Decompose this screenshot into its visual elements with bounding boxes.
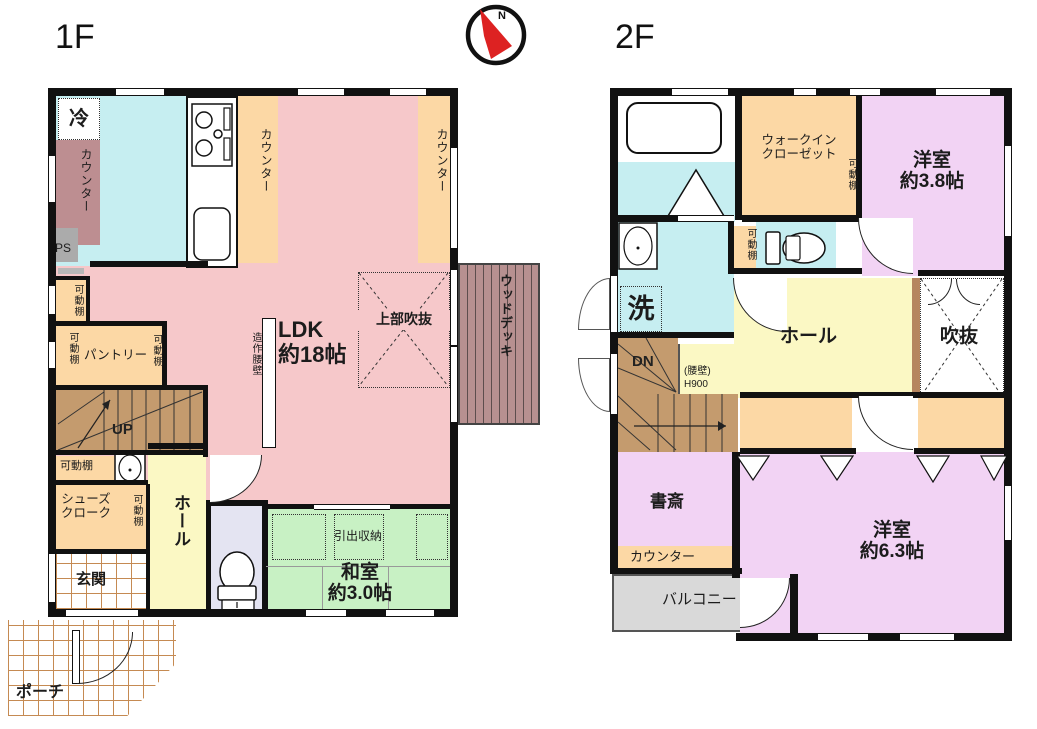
closet-left: [740, 398, 852, 452]
laundry-label: 洗: [620, 286, 662, 332]
washbasin-2f-icon: [618, 222, 658, 270]
knee-wall-label: (腰壁) H900: [684, 366, 711, 391]
window: [850, 88, 880, 96]
toilet-1f-icon: [212, 550, 264, 612]
pantry-shelf-right-label: 可動棚: [142, 334, 162, 384]
wall: [56, 450, 206, 455]
compass-north-label: N: [498, 10, 506, 22]
shelf-under-stairs-label: 可動棚: [60, 460, 93, 472]
wall: [618, 215, 680, 222]
kitchen-unit-icon: [186, 96, 238, 268]
void-label: 吹抜: [940, 326, 978, 347]
window: [900, 633, 954, 641]
tatami-storage-box: [416, 514, 448, 560]
sliding-door-tatami: [314, 504, 390, 510]
wall: [740, 448, 856, 454]
duct-box: [58, 268, 84, 274]
wall: [162, 321, 167, 390]
pantry-shelf-left-label: 可動棚: [58, 332, 78, 382]
floorplan-page: 1F 2F N: [0, 0, 1037, 729]
bath-door-opening: [678, 215, 734, 222]
stairs-2f-run: [618, 394, 738, 452]
wall: [790, 574, 798, 634]
casement-window-arc: [578, 358, 610, 412]
window: [794, 88, 816, 96]
wall: [56, 385, 206, 390]
window: [298, 88, 344, 96]
western63-door-arc: [858, 396, 913, 450]
shelf-upper-label: 可動棚: [61, 284, 83, 322]
window: [386, 609, 434, 617]
window: [390, 88, 426, 96]
window: [1004, 486, 1012, 540]
wall: [262, 504, 268, 609]
window: [610, 354, 618, 414]
wic-shelf-label: 可動棚: [837, 158, 857, 208]
wall: [90, 261, 208, 267]
closet-door-mark: [980, 455, 1008, 481]
tatami-storage-box: [272, 514, 326, 560]
wall: [728, 222, 734, 274]
drawer-storage-label: 引出収納: [334, 530, 382, 543]
window: [450, 148, 458, 248]
stairs-dn-label: DN: [632, 353, 654, 370]
floor1-title: 1F: [55, 18, 95, 57]
western-63-label: 洋室 約6.3帖: [828, 518, 956, 564]
wall: [918, 270, 1008, 276]
window: [306, 609, 346, 617]
western-38-label: 洋室 約3.8帖: [868, 148, 996, 194]
counter-window-label: カウンター: [422, 128, 448, 224]
pantry-label: パントリー: [84, 348, 147, 362]
upper-void-label: 上部吹抜: [358, 310, 450, 330]
window: [610, 276, 618, 332]
hall-2f-label: ホール: [780, 326, 837, 347]
wall: [56, 480, 148, 485]
balcony-label: バルコニー: [662, 592, 737, 609]
entrance-label: 玄関: [76, 572, 106, 589]
washroom-shelf-label: 可動棚: [736, 228, 756, 272]
void-knee-wall: [912, 278, 920, 398]
stairs-2f-winder: DN: [618, 338, 678, 394]
compass-icon: N: [460, 2, 532, 70]
wall: [742, 215, 862, 222]
porch-label: ポーチ: [16, 684, 64, 702]
window: [116, 88, 164, 96]
tatami-room-label: 和室 約3.0帖: [298, 562, 422, 604]
counter-2f-label: カウンター: [630, 550, 695, 565]
hall-1f-label: ホール: [162, 494, 190, 578]
wall: [618, 332, 734, 338]
counter-left-label: カウンター: [64, 148, 92, 244]
wall: [56, 549, 148, 554]
wall: [86, 276, 90, 326]
shoes-closet-shelf-label: 可動棚: [122, 494, 142, 544]
wall: [262, 504, 314, 509]
casement-window-arc: [578, 278, 610, 330]
wall: [735, 96, 742, 220]
window: [48, 156, 56, 202]
floor2-title: 2F: [615, 18, 655, 57]
toilet-2f-icon: [764, 226, 828, 270]
window-mullion: [450, 345, 458, 347]
closet-door-mark: [736, 455, 770, 481]
closet-right: [918, 398, 1004, 452]
closet-door-mark: [916, 455, 950, 483]
partition-wall-bar: [262, 318, 276, 448]
wall: [146, 484, 150, 609]
refrigerator-label: 冷: [58, 98, 100, 140]
upper-void-box: [358, 272, 450, 388]
bath-folding-door-icon: [664, 166, 728, 218]
ldk-label: LDK 約18帖: [278, 318, 346, 367]
wall: [914, 448, 1012, 454]
window: [818, 633, 868, 641]
wall: [206, 500, 211, 609]
wall: [610, 568, 742, 574]
window: [48, 286, 56, 314]
wall: [56, 276, 88, 280]
window: [1004, 146, 1012, 236]
wall-outer: [736, 633, 1012, 641]
stairs-up-label: UP: [112, 421, 133, 438]
partition-wall-label: 造作腰壁: [245, 332, 261, 412]
wall: [388, 504, 450, 509]
shoes-closet-label: シューズ クローク: [54, 490, 118, 522]
window: [48, 554, 56, 602]
counter-kitchen-label: カウンター: [246, 128, 272, 224]
entrance-door-opening: [66, 609, 138, 617]
window: [48, 342, 56, 368]
wall: [148, 443, 208, 449]
window: [672, 88, 728, 96]
window: [936, 88, 990, 96]
ps-label: PS: [55, 242, 71, 255]
study-label: 書斎: [650, 492, 684, 511]
bathtub-icon: [626, 102, 722, 154]
wood-deck-label: ウッドデッキ: [488, 274, 512, 382]
closet-door-mark: [820, 455, 854, 481]
